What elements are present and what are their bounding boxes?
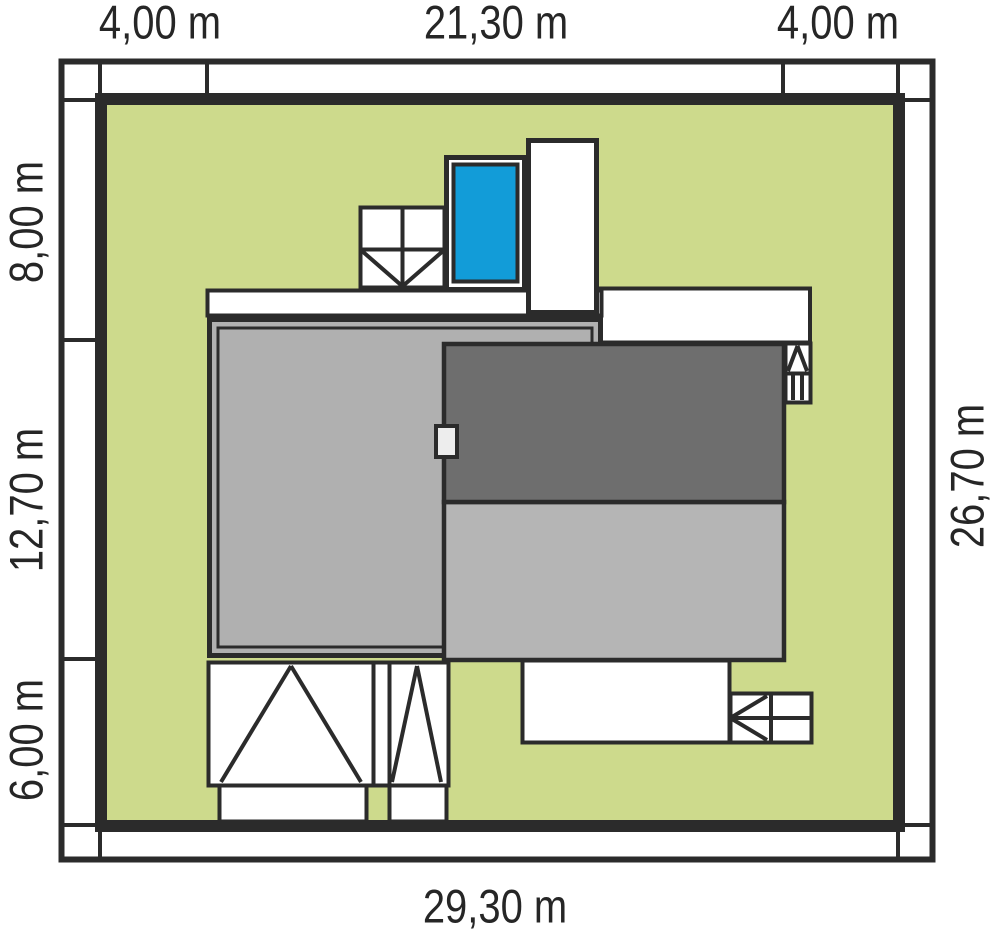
roof-plane-lower: [444, 502, 784, 660]
dim-top-right-setback: 4,00 m: [777, 0, 899, 50]
site-plan-drawing: [0, 0, 1000, 932]
roof-plane-upper: [444, 344, 784, 502]
stairs-bottom-right: [731, 694, 812, 743]
dim-left-bottom-setback: 6,00 m: [0, 679, 54, 801]
driveway: [209, 663, 374, 786]
dim-left-house-depth: 12,70 m: [0, 428, 54, 572]
dim-top-house-width: 21,30 m: [424, 0, 568, 50]
terrace-bottom: [523, 661, 730, 743]
annex-block: [529, 141, 597, 313]
dim-top-left-setback: 4,00 m: [99, 0, 221, 50]
driveway-apron: [220, 786, 367, 822]
dim-right-plot-depth: 26,70 m: [940, 404, 995, 548]
stairs-top: [361, 208, 445, 288]
dim-bottom-plot-width: 29,30 m: [423, 879, 567, 932]
site-plan: 4,00 m 21,30 m 4,00 m 8,00 m 12,70 m 6,0…: [0, 0, 1000, 932]
chimney: [436, 426, 457, 457]
paving-cell: [374, 663, 390, 786]
pool: [447, 158, 525, 290]
walkway: [390, 663, 449, 786]
dim-left-top-setback: 8,00 m: [0, 161, 54, 283]
entrance-arrow-up: [786, 344, 811, 403]
walkway-apron: [390, 786, 447, 822]
pool-water: [454, 165, 518, 282]
